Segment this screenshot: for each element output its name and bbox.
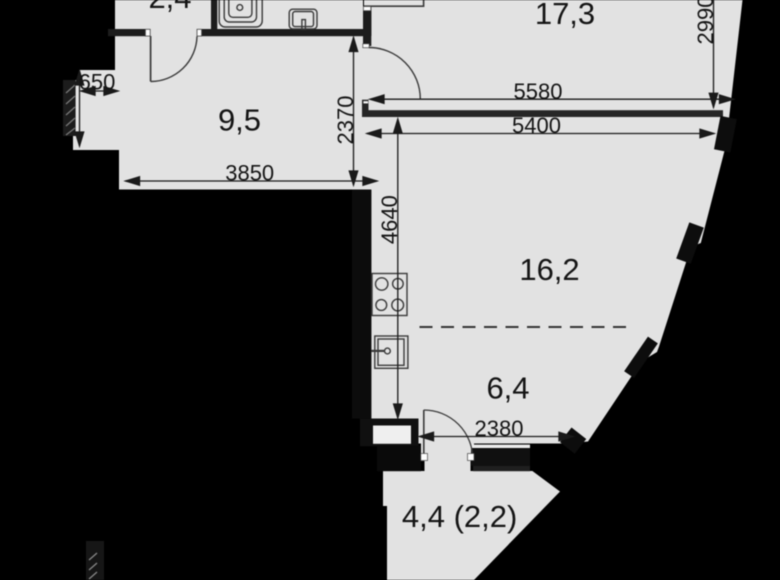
svg-text:5580: 5580 xyxy=(514,79,563,104)
svg-text:9,5: 9,5 xyxy=(218,103,261,138)
svg-text:2990: 2990 xyxy=(693,0,718,44)
svg-text:2380: 2380 xyxy=(475,416,524,441)
svg-text:2370: 2370 xyxy=(333,96,358,145)
svg-text:6,4: 6,4 xyxy=(486,371,529,406)
svg-text:5400: 5400 xyxy=(512,113,561,138)
svg-text:3850: 3850 xyxy=(225,161,274,186)
svg-text:4,4 (2,2): 4,4 (2,2) xyxy=(402,499,517,534)
svg-text:16,2: 16,2 xyxy=(519,252,579,287)
svg-text:2,4: 2,4 xyxy=(148,0,191,15)
svg-text:4640: 4640 xyxy=(377,195,402,244)
svg-text:650: 650 xyxy=(79,70,116,95)
svg-text:17,3: 17,3 xyxy=(535,0,595,31)
